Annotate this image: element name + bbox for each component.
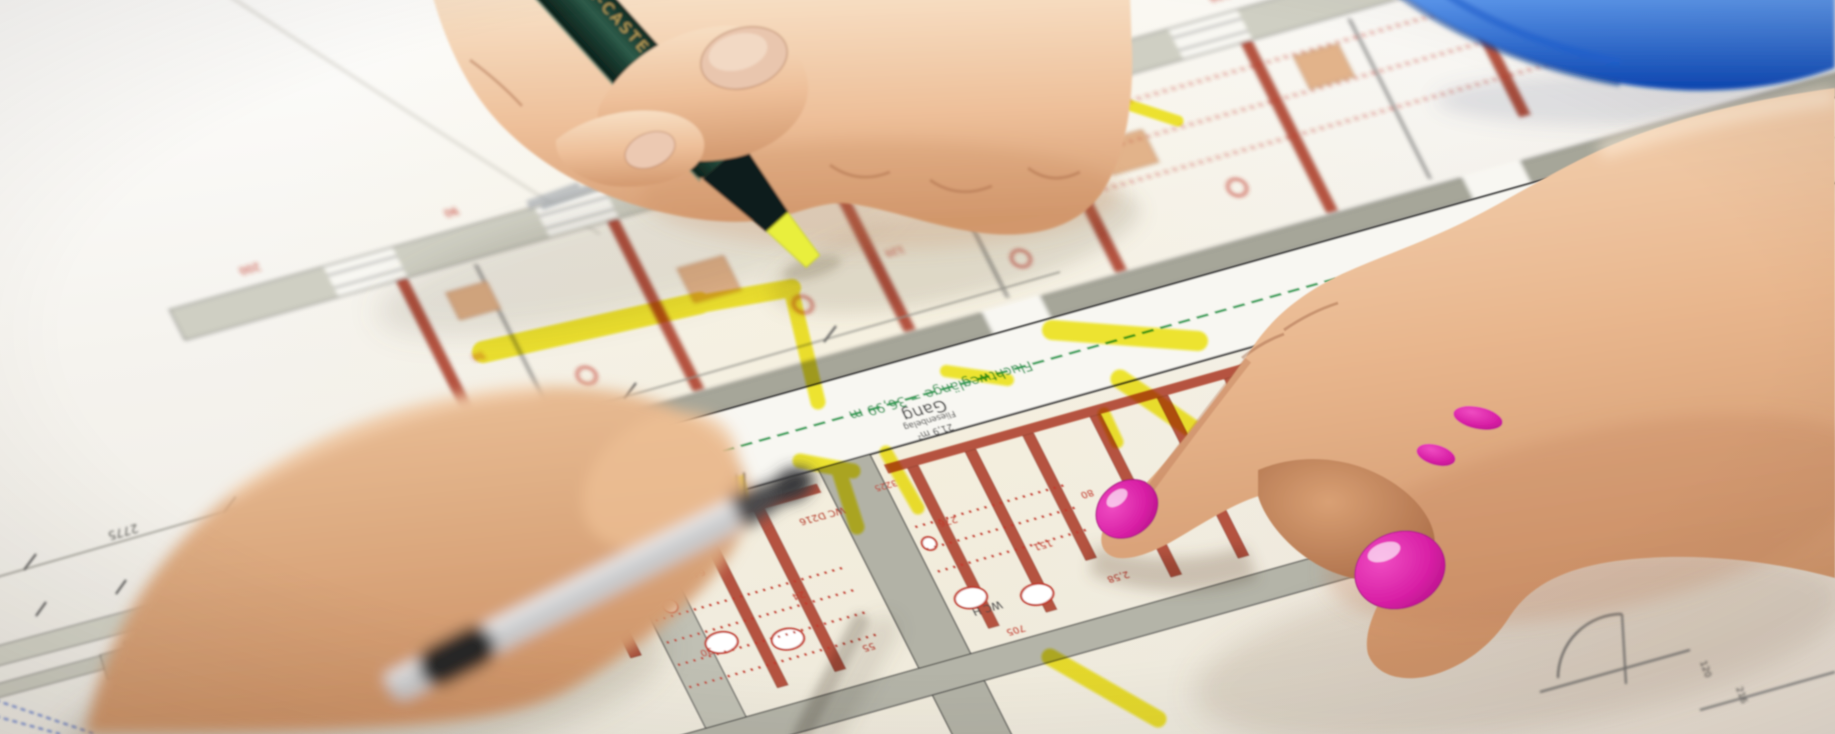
photo-canvas: 200 90 216 146 85 100 50 120 Fluchtweglä… xyxy=(0,0,1835,734)
vignette-overlay xyxy=(0,0,1835,734)
photo-architects-floorplan: 200 90 216 146 85 100 50 120 Fluchtweglä… xyxy=(0,0,1835,734)
